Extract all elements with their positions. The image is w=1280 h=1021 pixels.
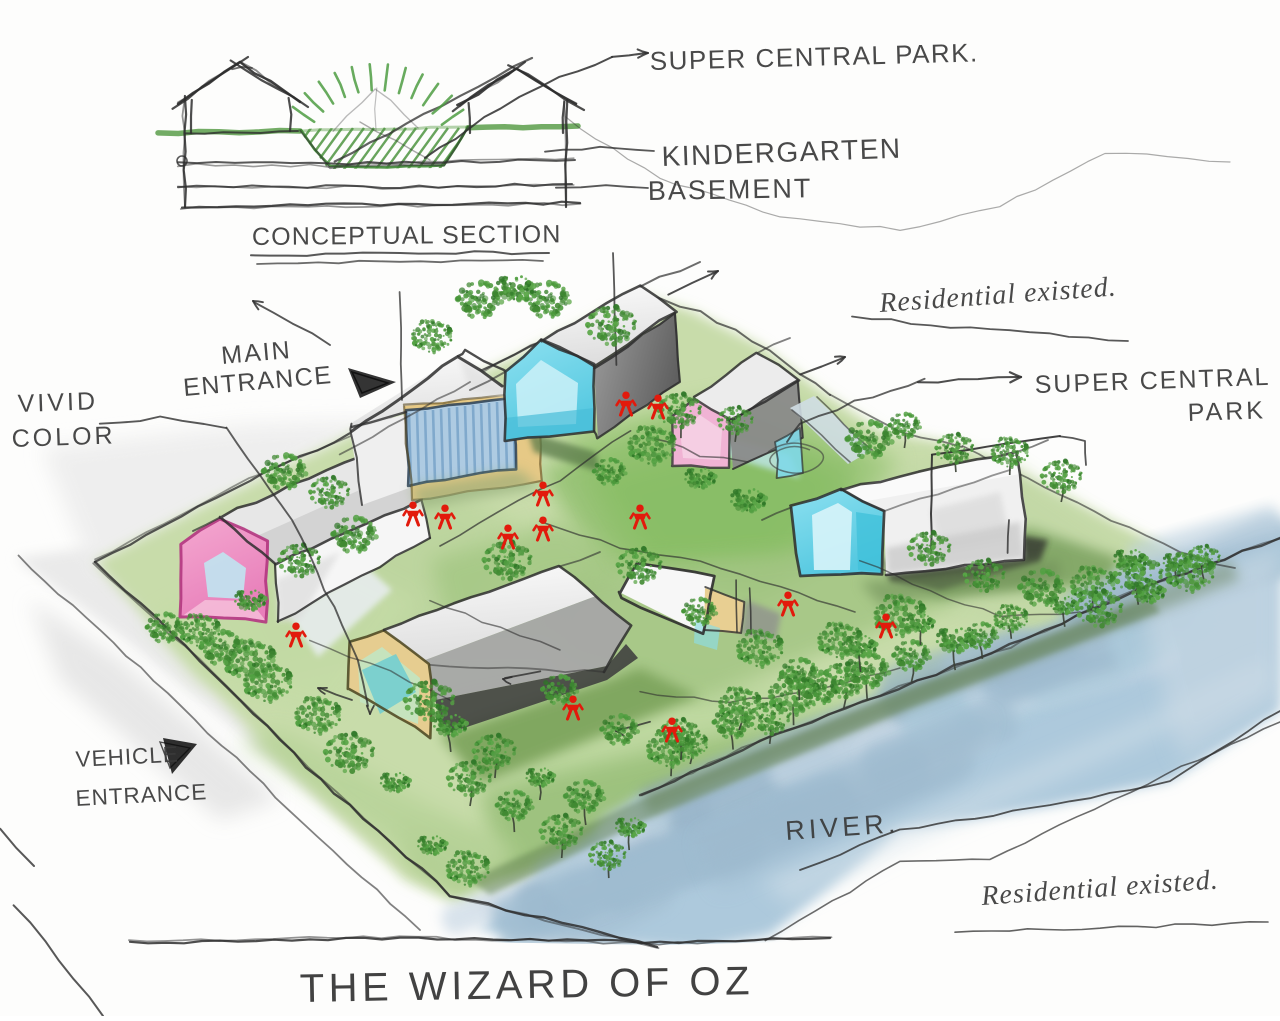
svg-text:CONCEPTUAL SECTION: CONCEPTUAL SECTION: [252, 220, 562, 251]
svg-text:PARK: PARK: [1187, 396, 1266, 427]
svg-text:BASEMENT: BASEMENT: [648, 173, 813, 206]
svg-text:THE WIZARD OF OZ: THE WIZARD OF OZ: [299, 959, 754, 1011]
svg-text:COLOR: COLOR: [11, 421, 116, 453]
svg-text:VIVID: VIVID: [17, 387, 98, 418]
